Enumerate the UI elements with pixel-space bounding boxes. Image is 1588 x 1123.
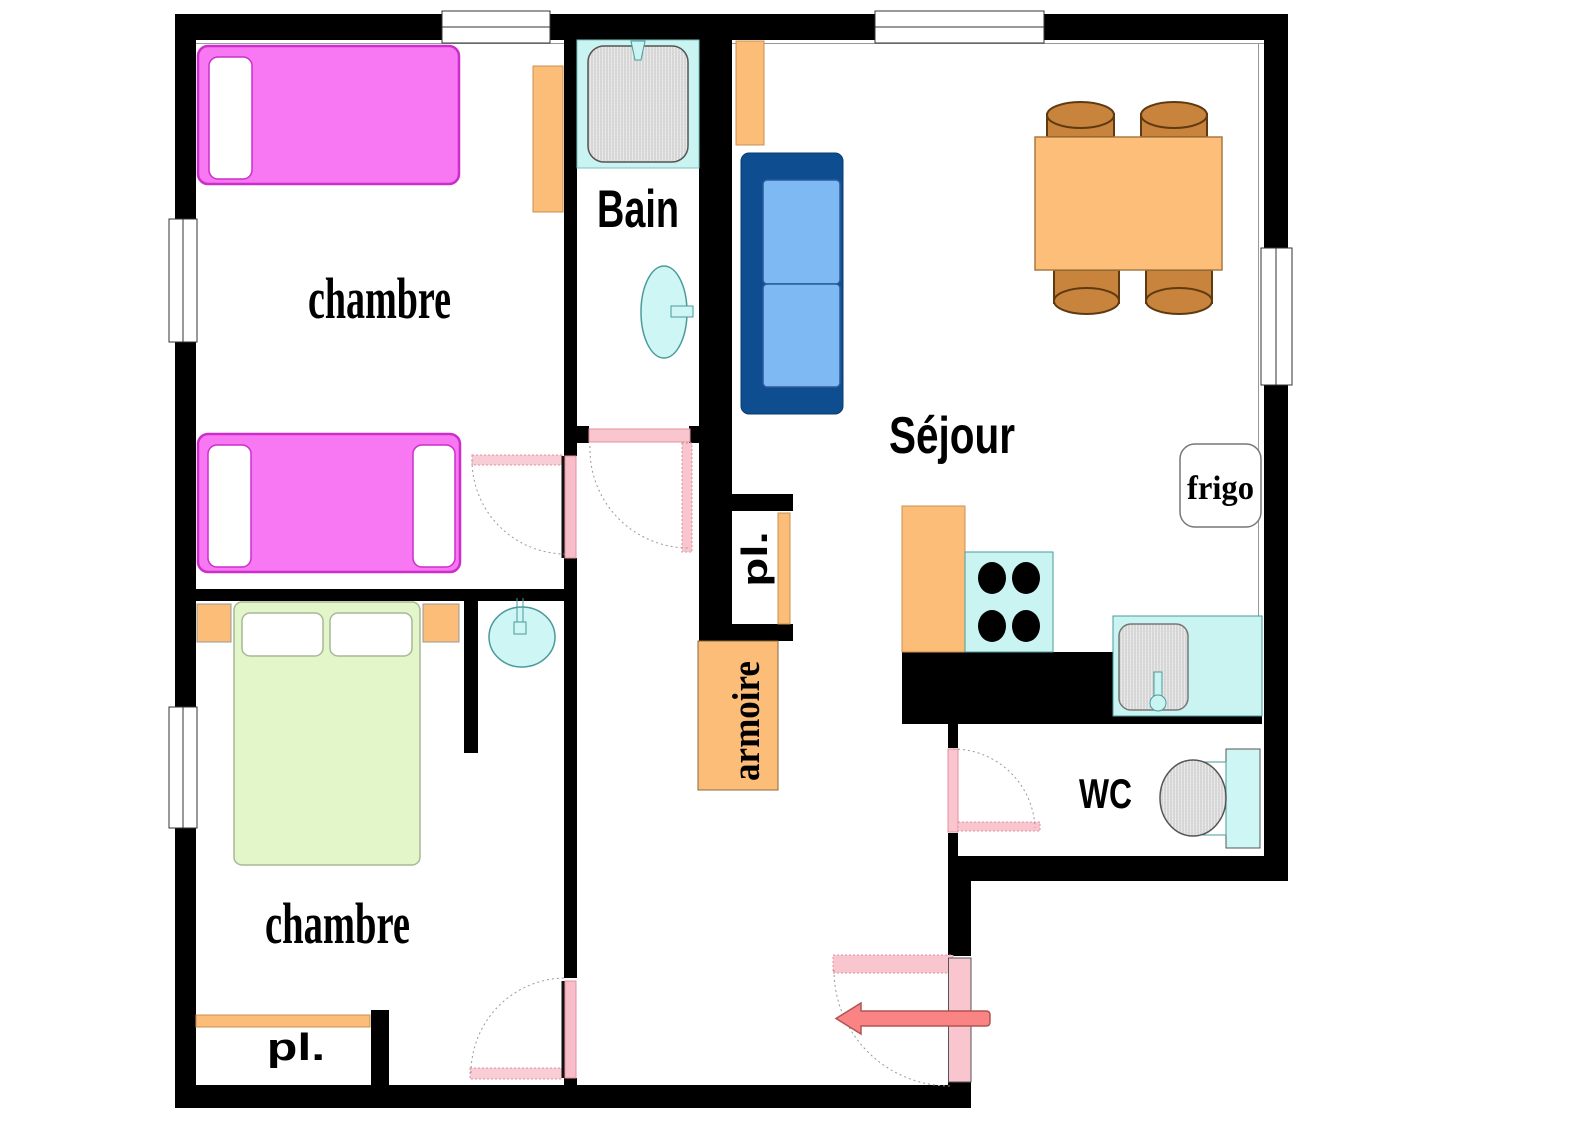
svg-text:Bain: Bain	[597, 180, 679, 239]
svg-text:armoire: armoire	[725, 661, 768, 781]
svg-text:WC: WC	[1079, 770, 1132, 817]
svg-text:Séjour: Séjour	[889, 407, 1015, 465]
svg-text:frigo: frigo	[1187, 470, 1254, 507]
svg-text:pl.: pl.	[267, 1027, 326, 1069]
svg-text:chambre: chambre	[265, 891, 410, 956]
svg-text:pl.: pl.	[735, 531, 775, 586]
svg-text:chambre: chambre	[308, 266, 451, 331]
